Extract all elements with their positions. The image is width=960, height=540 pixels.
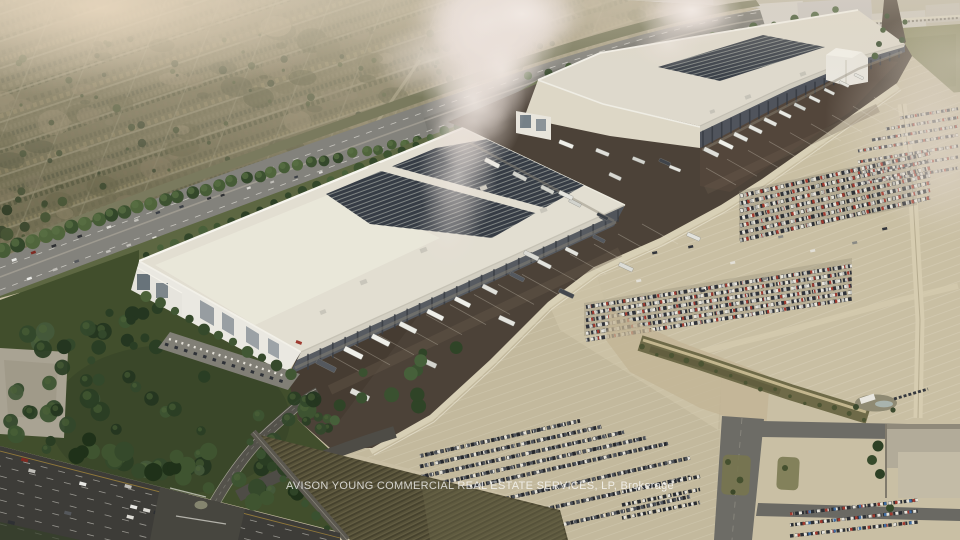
svg-text:AVISON YOUNG COMMERCIAL REAL E: AVISON YOUNG COMMERCIAL REAL ESTATE SERV…	[286, 480, 674, 492]
